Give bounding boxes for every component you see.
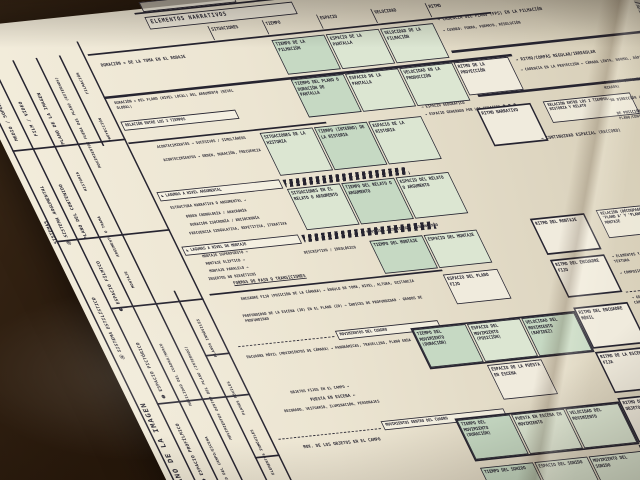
diagram-sheet: ELEMENTOS NARRATIVOSSITUACIONESTIEMPOESP…	[0, 0, 640, 480]
photo-stage: COMPÁRALO Y CONTRÁSTALO ENTRE DOS PLANOS…	[0, 0, 640, 480]
ann-duracion-toma: DURACIÓN = DE LA TOMA EN EL RODAJE	[100, 51, 219, 69]
ann-generacion-movimientos: → GENERACIÓN DEL RITMO POR LOS MOVIMIENT…	[631, 280, 640, 305]
ann-raccord-mirada: DE MIRADA (EMPLAZAMIENTO DEL EJE DE MIRA…	[601, 73, 640, 91]
dash-right-ritmo-1	[626, 277, 640, 292]
ann-continuidad-espacial: → CONTINUIDAD ESPACIAL (RACCORD)	[540, 123, 640, 142]
box-relacion-3-tiempos: RELACIÓN ENTRE LOS 3 TIEMPOS	[120, 110, 239, 131]
cell-ritmo-narrativo: RITMO NARRATIVO	[476, 103, 549, 147]
rail-elementos-moviles: ELEMENTOS MÓVILES	[264, 457, 303, 480]
ann-duracion-plano: DURACIÓN = DEL PLANO (NIVEL LOCAL) DEL A…	[114, 89, 243, 111]
ann-descriptivo-ideologico: DESCRIPTIVO / IDEOLÓGICO	[303, 244, 375, 256]
cell-ritmo-encuadre-fijo: RITMO DEL ENCUADRE FIJO	[550, 254, 623, 298]
cell-espacio-puesta: ESPACIO DE LA PUESTA EN ESCENA	[487, 359, 558, 399]
cell-ritmo-escena-fija: RITMO DE LA ESCENA FIJA	[595, 346, 640, 393]
cell-ritmo-montaje: RITMO DEL MONTAJE	[530, 213, 602, 255]
rail-espacio-filmico: ❸ ESPACIO FÍLMICO	[82, 232, 126, 312]
ann-encuadre-movil: ENCUADRE MÓVIL (MOVIMIENTOS DE CÁMARA) →…	[246, 337, 423, 360]
dash-movimientos-cuadro	[238, 336, 335, 347]
rail-filmacion: FILMACIÓN	[65, 49, 91, 94]
box-relacion-decoupage: RELACIÓN (DÉCOUPAGE) ENTRE PLANOS: ‘PLAN…	[596, 200, 640, 238]
cell-espacio-plano-fijo: ESPACIO DEL PLANO FIJO	[443, 269, 512, 304]
ann-elementos-visuales: → ELEMENTOS Y PROPIEDADES VISUALES: FORM…	[611, 240, 640, 265]
